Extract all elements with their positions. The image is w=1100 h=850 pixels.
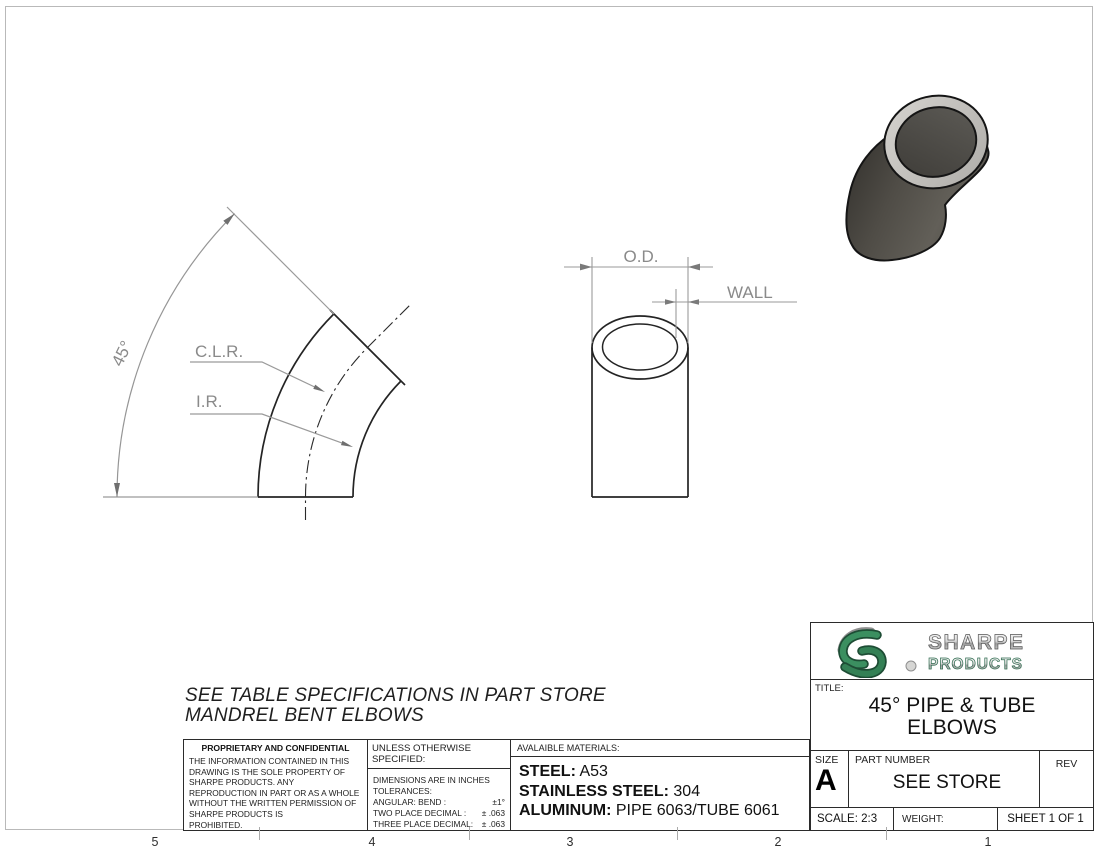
weight-cell: WEIGHT: bbox=[893, 808, 997, 830]
proprietary-title: PROPRIETARY AND CONFIDENTIAL bbox=[189, 743, 362, 753]
tolerance-row: TWO PLACE DECIMAL : ± .063 bbox=[373, 808, 505, 819]
material-label: ALUMINUM: bbox=[519, 802, 611, 819]
spec-note-line2: MANDREL BENT ELBOWS bbox=[185, 706, 606, 726]
size-cell: SIZE A bbox=[811, 751, 848, 807]
elbow-section-view: 45° C.L.R. I.R. bbox=[103, 207, 412, 520]
zone-number: 1 bbox=[976, 835, 1000, 849]
tolerance-value: ±1° bbox=[492, 797, 505, 808]
wall-arrow-right bbox=[688, 299, 699, 305]
logo-brand-text: SHARPE bbox=[928, 631, 1025, 654]
part-number-cell: PART NUMBER SEE STORE bbox=[848, 751, 1039, 807]
tolerance-label: ANGULAR: BEND : bbox=[373, 797, 446, 808]
zone-number: 4 bbox=[360, 835, 384, 849]
elbow-centerline bbox=[306, 303, 413, 520]
angle-arrow-bottom bbox=[114, 483, 120, 497]
tolerance-label: THREE PLACE DECIMAL: bbox=[373, 819, 473, 830]
zone-number: 5 bbox=[143, 835, 167, 849]
materials-header: AVALAIBLE MATERIALS: bbox=[511, 740, 809, 757]
size-value: A bbox=[815, 767, 848, 795]
material-label: STEEL: bbox=[519, 763, 576, 780]
scale-weight-sheet-row: SCALE: 2:3 WEIGHT: SHEET 1 OF 1 bbox=[811, 807, 1093, 830]
materials-cell: AVALAIBLE MATERIALS: STEEL: A53 STAINLES… bbox=[510, 740, 809, 830]
zone-tick bbox=[469, 827, 470, 840]
clr-leader-line bbox=[190, 362, 321, 390]
material-value: 304 bbox=[673, 783, 700, 800]
od-label: O.D. bbox=[624, 247, 659, 266]
proprietary-line: SHARPE PRODUCTS. ANY bbox=[189, 777, 362, 788]
tolerances-subhead: TOLERANCES: bbox=[373, 786, 505, 797]
tolerance-value: ± .063 bbox=[482, 808, 505, 819]
wall-label: WALL bbox=[727, 283, 773, 302]
tolerance-value: ± .063 bbox=[482, 819, 505, 830]
material-row: STAINLESS STEEL: 304 bbox=[519, 782, 801, 802]
elbow-outer-arc bbox=[258, 314, 334, 497]
title-cell: TITLE: 45° PIPE & TUBE ELBOWS bbox=[811, 679, 1093, 750]
tube-end-view: O.D. WALL bbox=[564, 247, 797, 497]
od-arrow-left bbox=[580, 264, 592, 271]
clr-label: C.L.R. bbox=[195, 342, 243, 361]
logo-brand-subtext: PRODUCTS bbox=[928, 656, 1023, 673]
angle-upper-extension bbox=[227, 207, 334, 314]
elbow-3d-render bbox=[846, 85, 997, 260]
zone-number: 3 bbox=[558, 835, 582, 849]
drawing-title-line1: 45° PIPE & TUBE bbox=[811, 695, 1093, 717]
proprietary-line: THE INFORMATION CONTAINED IN THIS bbox=[189, 756, 362, 767]
ir-label: I.R. bbox=[196, 392, 222, 411]
tolerance-row: THREE PLACE DECIMAL: ± .063 bbox=[373, 819, 505, 830]
part-number-value: SEE STORE bbox=[855, 772, 1039, 794]
zone-tick bbox=[259, 827, 260, 840]
tolerances-cell: UNLESS OTHERWISE SPECIFIED: DIMENSIONS A… bbox=[367, 740, 510, 830]
scale-cell: SCALE: 2:3 bbox=[811, 808, 893, 830]
drawing-sheet: 45° C.L.R. I.R. O.D. bbox=[0, 0, 1100, 850]
spec-note: SEE TABLE SPECIFICATIONS IN PART STORE M… bbox=[185, 686, 606, 726]
material-value: A53 bbox=[579, 763, 607, 780]
tolerance-label: TWO PLACE DECIMAL : bbox=[373, 808, 466, 819]
part-number-label: PART NUMBER bbox=[855, 754, 1039, 766]
notes-strip: PROPRIETARY AND CONFIDENTIAL THE INFORMA… bbox=[183, 739, 810, 831]
sheet-cell: SHEET 1 OF 1 bbox=[997, 808, 1093, 830]
logo-cell: SHARPE PRODUCTS bbox=[811, 623, 1093, 679]
ir-leader-arrow bbox=[341, 441, 353, 447]
proprietary-line: REPRODUCTION IN PART OR AS A WHOLE bbox=[189, 788, 362, 799]
proprietary-cell: PROPRIETARY AND CONFIDENTIAL THE INFORMA… bbox=[184, 740, 367, 830]
elbow-inner-arc bbox=[353, 381, 401, 497]
proprietary-line: PROHIBITED. bbox=[189, 820, 362, 831]
wall-arrow-left bbox=[665, 299, 676, 305]
zone-number: 2 bbox=[766, 835, 790, 849]
spec-note-line1: SEE TABLE SPECIFICATIONS IN PART STORE bbox=[185, 686, 606, 706]
logo-tube-icon bbox=[842, 632, 916, 674]
tolerances-units: DIMENSIONS ARE IN INCHES bbox=[373, 775, 505, 786]
rev-cell: REV bbox=[1039, 751, 1093, 807]
proprietary-line: WITHOUT THE WRITTEN PERMISSION OF bbox=[189, 798, 362, 809]
tube-inner-ellipse bbox=[603, 324, 678, 370]
drawing-title: 45° PIPE & TUBE ELBOWS bbox=[811, 695, 1093, 739]
title-block: SHARPE PRODUCTS TITLE: 45° PIPE & TUBE E… bbox=[810, 622, 1094, 831]
title-field-label: TITLE: bbox=[815, 683, 844, 694]
rev-label: REV bbox=[1056, 758, 1078, 770]
tolerance-row: ANGULAR: BEND : ±1° bbox=[373, 797, 505, 808]
tolerances-header: UNLESS OTHERWISE SPECIFIED: bbox=[368, 740, 510, 769]
size-part-rev-row: SIZE A PART NUMBER SEE STORE REV bbox=[811, 750, 1093, 807]
drawing-title-line2: ELBOWS bbox=[811, 717, 1093, 739]
angle-dimension-label: 45° bbox=[108, 338, 136, 369]
material-label: STAINLESS STEEL: bbox=[519, 783, 669, 800]
zone-tick bbox=[677, 827, 678, 840]
proprietary-line: DRAWING IS THE SOLE PROPERTY OF bbox=[189, 767, 362, 778]
proprietary-line: SHARPE PRODUCTS IS bbox=[189, 809, 362, 820]
clr-leader-arrow bbox=[313, 385, 325, 392]
material-value: PIPE 6063/TUBE 6061 bbox=[616, 802, 780, 819]
zone-tick bbox=[886, 827, 887, 840]
od-arrow-right bbox=[688, 264, 700, 271]
material-row: STEEL: A53 bbox=[519, 762, 801, 782]
material-row: ALUMINUM: PIPE 6063/TUBE 6061 bbox=[519, 801, 801, 821]
sharpe-products-logo: SHARPE PRODUCTS bbox=[811, 623, 1093, 678]
